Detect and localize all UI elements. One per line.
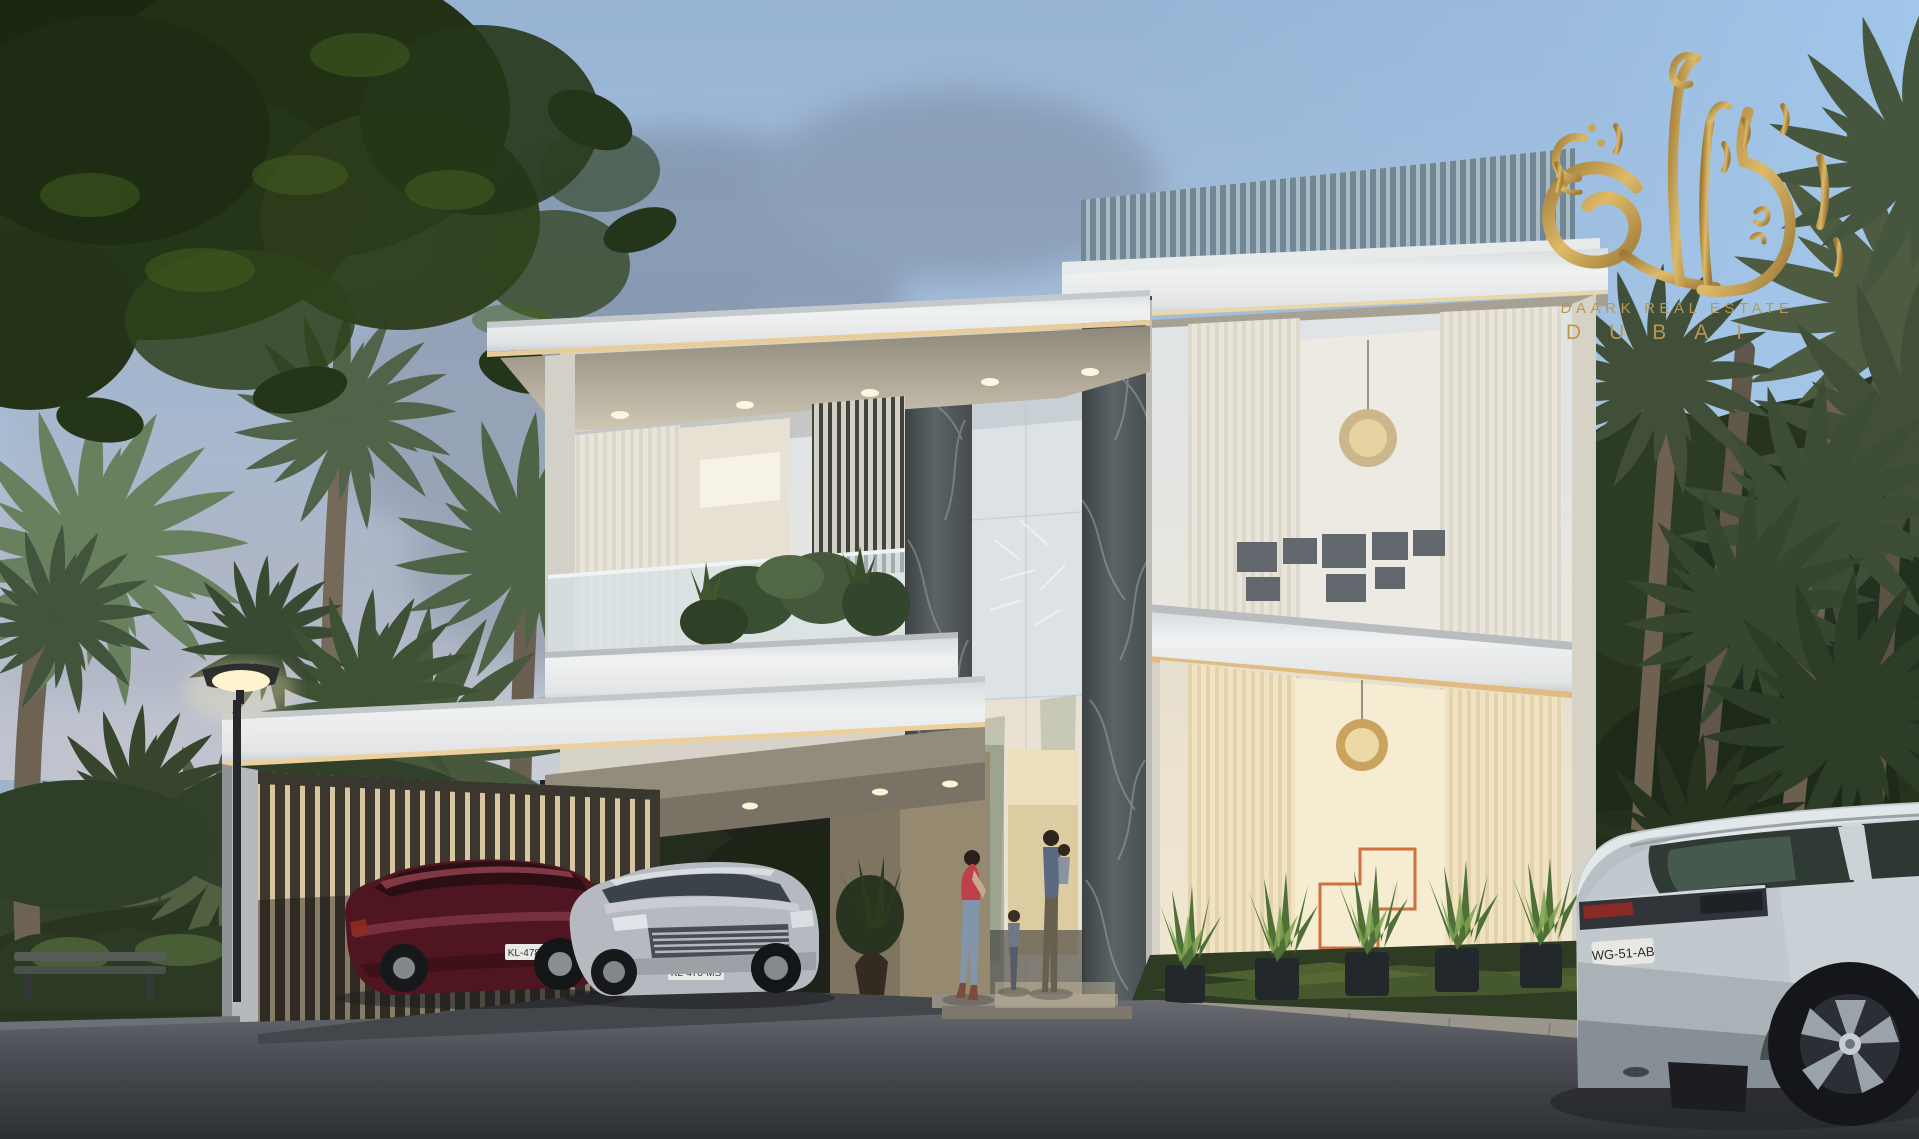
svg-text:DUBAI: DUBAI [1566, 321, 1770, 344]
svg-text:DAARK REAL ESTATE: DAARK REAL ESTATE [1561, 300, 1794, 317]
